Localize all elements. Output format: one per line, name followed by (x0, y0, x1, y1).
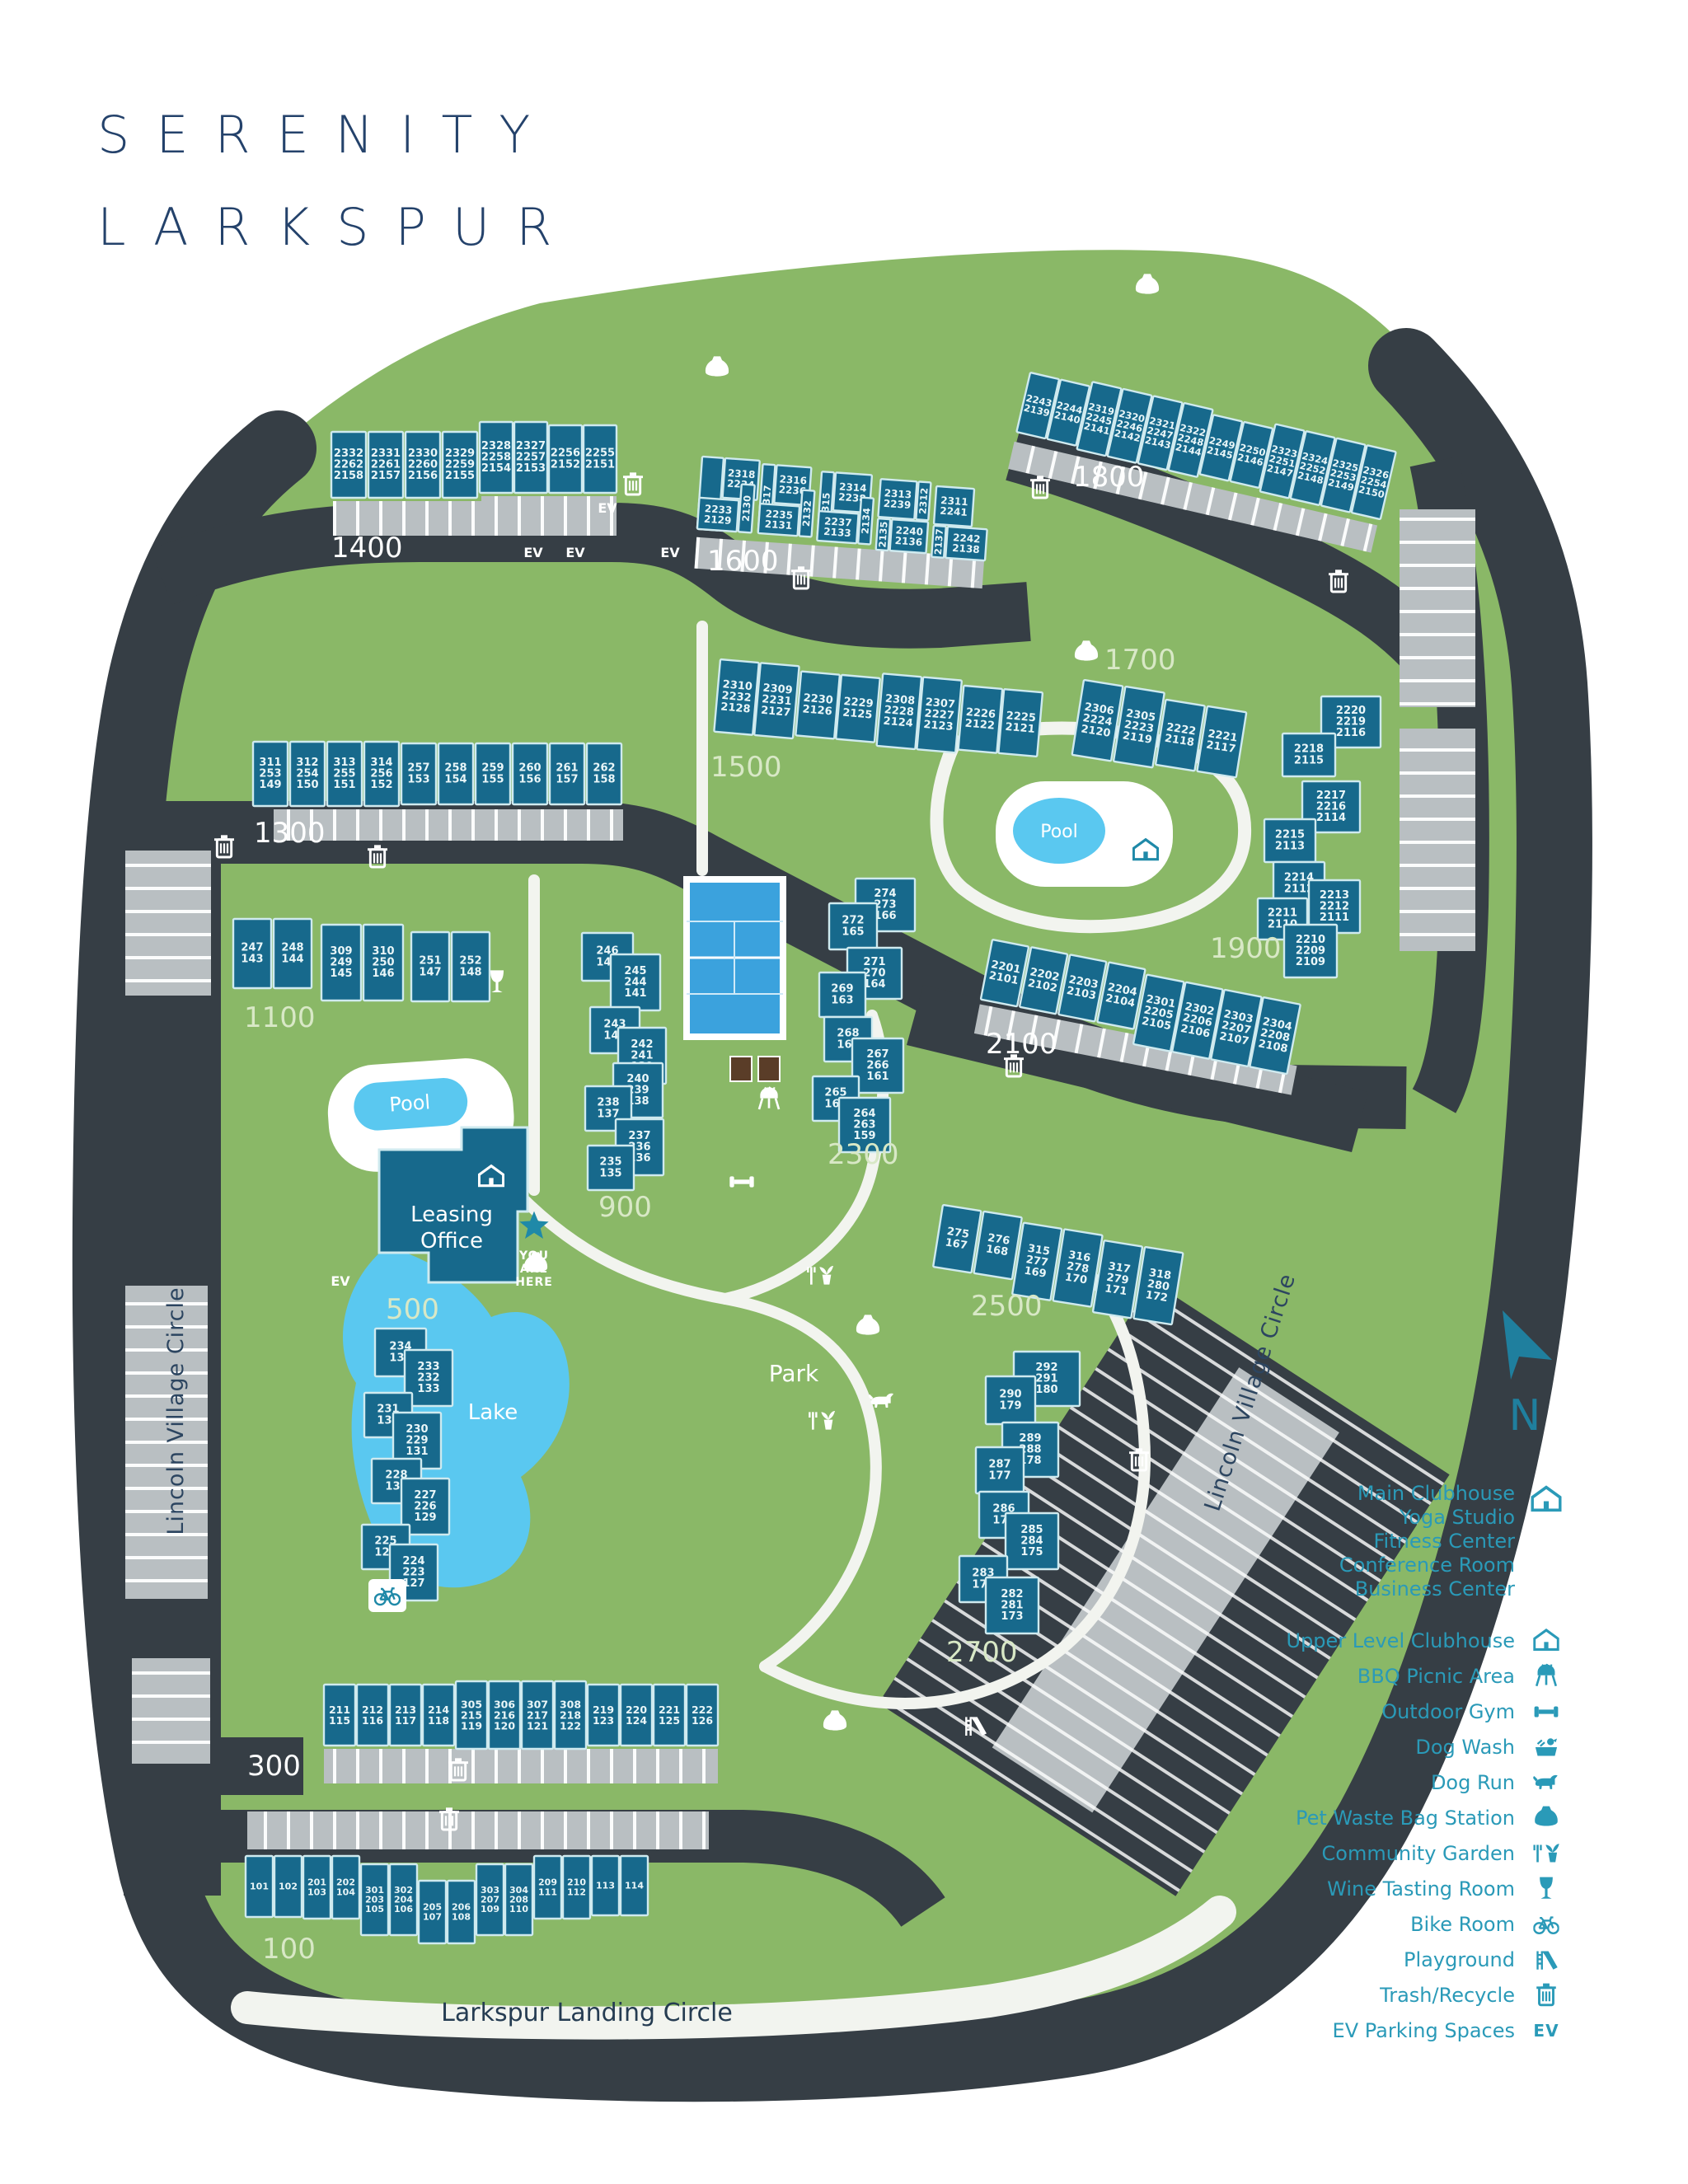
legend-row: Dog Wash (1210, 1729, 1564, 1765)
unit-numbers: 306216120 (494, 1698, 515, 1732)
unit-numbers: 232822582154 (481, 440, 511, 475)
unit-numbers: 222022192116 (1336, 705, 1366, 739)
ev-parking-label: EV (565, 545, 585, 560)
dogwash-icon (1528, 1733, 1564, 1761)
legend-label: Pet Waste Bag Station (1296, 1807, 1515, 1830)
unit-numbers: 238137 (597, 1097, 619, 1121)
unit-numbers: 201103 (307, 1877, 326, 1898)
legend-label: Trash/Recycle (1380, 1984, 1515, 2007)
unit-numbers: 258154 (444, 762, 467, 786)
pool-west-label: Pool (388, 1090, 430, 1116)
unit-numbers: 214118 (428, 1704, 449, 1727)
cluster-label-1100: 1100 (244, 1001, 316, 1034)
legend-row: BBQ Picnic Area (1210, 1658, 1564, 1694)
legend-label: Bike Room (1410, 1913, 1515, 1936)
unit-numbers: 233222622158 (334, 448, 363, 482)
unit-numbers: 230822282124 (883, 692, 916, 729)
building-cluster-1400: 2332226221582331226121572330226021562329… (331, 422, 617, 536)
unit-numbers: 230229131 (406, 1423, 428, 1458)
icon-chip (368, 1579, 406, 1612)
ev-parking-label: EV (598, 500, 617, 516)
unit-numbers: 251147 (419, 955, 441, 979)
cluster-label-1600: 1600 (707, 545, 779, 578)
playground-icon (1528, 1946, 1564, 1974)
unit-numbers: 209111 (538, 1877, 557, 1898)
cluster-label-500: 500 (386, 1293, 439, 1326)
legend-label: Dog Wash (1415, 1736, 1515, 1759)
cluster-label-2500: 2500 (971, 1290, 1043, 1323)
unit-numbers: 252148 (459, 955, 481, 979)
north-label: N (1479, 1391, 1570, 1441)
parking-stripes (481, 496, 617, 536)
legend-label: Community Garden (1322, 1842, 1516, 1865)
unit-numbers: 313255151 (333, 757, 355, 791)
legend-row: Pet Waste Bag Station (1210, 1800, 1564, 1835)
parking-stripes (324, 1749, 718, 1783)
amenities-legend: Main ClubhouseYoga StudioFitness CenterC… (1210, 1482, 1564, 2048)
cluster-label-2300: 2300 (828, 1138, 899, 1171)
street-left-label: Lincoln Village Circle (163, 1286, 189, 1535)
unit-numbers: 311253149 (259, 757, 281, 791)
unit-numbers: 247143 (241, 942, 263, 966)
unit-numbers: 232922592155 (445, 448, 475, 482)
unit-numbers: 22212117 (1205, 728, 1238, 756)
unit-numbers: 22372133 (823, 515, 852, 539)
unit-numbers: 206108 (452, 1902, 471, 1923)
legend-clubhouse-line: Main Clubhouse (1339, 1482, 1515, 1506)
unit-numbers: 2130 (740, 494, 753, 522)
property-title-line2: LARKSPUR (97, 181, 578, 274)
unit-numbers: 264263159 (853, 1108, 875, 1142)
legend-clubhouse-line: Yoga Studio (1339, 1506, 1515, 1530)
clubhouse-icon (1528, 1483, 1564, 1601)
unit-numbers: 23132239 (883, 487, 912, 511)
unit-numbers: 271270164 (863, 956, 885, 991)
north-indicator: N (1479, 1304, 1570, 1444)
unit-numbers: 22182115 (1294, 743, 1324, 767)
unit-numbers: 233122612157 (371, 448, 401, 482)
legend-label: Playground (1404, 1948, 1515, 1971)
unit-numbers: 292291180 (1035, 1361, 1057, 1396)
unit-numbers: 2134 (859, 508, 872, 535)
unit-numbers: 233022602156 (408, 448, 438, 482)
unit-numbers: 232722572153 (516, 440, 546, 475)
grill-icon (1528, 1662, 1564, 1690)
cluster-label-1900: 1900 (1210, 932, 1282, 965)
unit-numbers: 230922312127 (761, 682, 794, 719)
unit-numbers: 22252121 (1005, 710, 1037, 736)
unit-numbers: 230722272123 (923, 696, 956, 733)
unit-numbers: 310250146 (372, 945, 394, 980)
park-label: Park (769, 1360, 819, 1387)
unit-numbers: 261157 (556, 762, 578, 786)
legend-row: Bike Room (1210, 1906, 1564, 1942)
unit-numbers: 290179 (999, 1389, 1021, 1413)
cluster-label-1400: 1400 (331, 532, 403, 565)
legend-clubhouse-block: Main ClubhouseYoga StudioFitness CenterC… (1210, 1482, 1564, 1601)
unit-numbers: 314256152 (370, 757, 392, 791)
unit-numbers: 245244141 (624, 965, 646, 1000)
unit-numbers: 114 (625, 1881, 644, 1891)
unit-numbers: 262158 (593, 762, 615, 786)
ev-parking-label: EV (660, 545, 680, 560)
unit-numbers: 205107 (423, 1902, 442, 1923)
unit-numbers: 259155 (481, 762, 504, 786)
unit-numbers: 23112241 (940, 494, 968, 518)
unit-numbers: 276168 (985, 1232, 1010, 1259)
legend-label: Dog Run (1431, 1771, 1515, 1794)
unit-numbers: 303207109 (481, 1885, 499, 1915)
unit-numbers: 302204106 (394, 1885, 413, 1915)
unit-numbers: 101 (250, 1882, 269, 1892)
unit-numbers: 212116 (362, 1704, 383, 1727)
legend-row: Trash/Recycle (1210, 1977, 1564, 2013)
unit-numbers: 307217121 (527, 1698, 548, 1732)
unit-numbers: 22562152 (551, 448, 580, 471)
legend-clubhouse-line: Conference Room (1339, 1554, 1515, 1577)
unit-numbers: 220124 (626, 1704, 647, 1727)
unit-numbers: 22352131 (764, 508, 793, 532)
unit-numbers: 260156 (518, 762, 541, 786)
unit-numbers: 202104 (336, 1877, 355, 1898)
unit-numbers: 22552151 (585, 448, 615, 471)
unit-numbers: 305215119 (461, 1698, 482, 1732)
legend-clubhouse-line: Business Center (1339, 1577, 1515, 1601)
legend-row: EV Parking SpacesEV (1210, 2013, 1564, 2048)
unit-numbers: 22422138 (952, 532, 981, 555)
trash-icon (1528, 1981, 1564, 2009)
garden-icon (1528, 1840, 1564, 1868)
unit-numbers: 102 (279, 1882, 298, 1892)
unit-numbers: 2137 (932, 528, 945, 555)
bike-icon (1528, 1910, 1564, 1938)
unit-numbers: 213117 (395, 1704, 416, 1727)
legend-clubhouse-labels: Main ClubhouseYoga StudioFitness CenterC… (1339, 1482, 1515, 1601)
ev-parking-label: EV (523, 545, 543, 560)
legend-row: Playground (1210, 1942, 1564, 1977)
unit-numbers: 22222118 (1164, 721, 1197, 749)
unit-numbers: 230622242120 (1080, 701, 1114, 739)
pool-north-label: Pool (1040, 822, 1078, 842)
legend-row: Community Garden (1210, 1835, 1564, 1871)
dog-icon (1528, 1769, 1564, 1797)
cluster-label-900: 900 (598, 1191, 652, 1224)
unit-numbers: 221322122111 (1320, 889, 1349, 924)
cluster-label-300: 300 (247, 1750, 301, 1783)
legend-label: Wine Tasting Room (1327, 1877, 1515, 1900)
cluster-label-2100: 2100 (986, 1028, 1057, 1061)
north-arrow-icon (1479, 1304, 1570, 1386)
unit-numbers: 230522232119 (1122, 707, 1156, 746)
unit-numbers: 309249145 (330, 945, 352, 980)
cluster-label-100: 100 (262, 1933, 316, 1966)
wine-icon (1528, 1875, 1564, 1903)
unit-numbers: 235135 (599, 1156, 621, 1180)
unit-numbers: 2132 (800, 500, 814, 527)
cluster-label-2700: 2700 (946, 1636, 1018, 1669)
legend-label: Upper Level Clubhouse (1286, 1629, 1515, 1652)
unit-numbers: 22402136 (894, 524, 923, 548)
unit-numbers: 233232133 (417, 1361, 439, 1395)
unit-numbers: 222126 (692, 1704, 713, 1727)
unit-numbers: 285284175 (1020, 1524, 1043, 1558)
cluster-label-1300: 1300 (254, 817, 326, 850)
unit-numbers: 2135 (876, 521, 889, 548)
bag-icon (1528, 1804, 1564, 1832)
cluster-label-1500: 1500 (710, 751, 782, 784)
dumbbell-icon (1528, 1698, 1564, 1726)
unit-numbers: 22292125 (842, 696, 874, 722)
property-title: SERENITY LARKSPUR (97, 89, 578, 274)
tennis-court (687, 879, 783, 1037)
site-map-page: { "title": {"line1": "SERENITY", "line2"… (0, 0, 1688, 2184)
legend-label: EV Parking Spaces (1333, 2019, 1515, 2042)
unit-numbers: 248144 (281, 942, 303, 966)
unit-numbers: 221125 (659, 1704, 680, 1727)
unit-numbers: 282281173 (1001, 1588, 1023, 1623)
unit-numbers: 210112 (567, 1877, 586, 1898)
unit-numbers: 113 (596, 1881, 615, 1891)
unit-numbers: 308218122 (560, 1698, 581, 1732)
unit-numbers: 301203105 (365, 1885, 384, 1915)
property-title-line1: SERENITY (97, 89, 578, 181)
building-cluster-300: 2111152121162131172141183052151193062161… (324, 1681, 718, 1783)
legend-label: BBQ Picnic Area (1357, 1665, 1515, 1688)
unit-numbers: 227226129 (414, 1489, 436, 1524)
unit-numbers: 275167 (945, 1226, 970, 1253)
unit-numbers: 272165 (842, 915, 864, 939)
legend-row: Upper Level Clubhouse (1210, 1623, 1564, 1658)
cluster-label-1700: 1700 (1104, 644, 1176, 677)
unit-numbers: 269163 (831, 983, 853, 1007)
unit-numbers: 304208110 (509, 1885, 528, 1915)
unit-numbers: 267266161 (866, 1048, 889, 1083)
lake-label: Lake (468, 1400, 518, 1425)
legend-row: Wine Tasting Room (1210, 1871, 1564, 1906)
unit-numbers: 2312 (917, 487, 930, 514)
parking-stripes (274, 809, 623, 841)
cluster-label-1800: 1800 (1073, 461, 1145, 494)
unit-numbers: 22332129 (704, 503, 733, 527)
street-bottom-label: Larkspur Landing Circle (441, 1999, 733, 2027)
legend-row: Outdoor Gym (1210, 1694, 1564, 1729)
unit-numbers: 257153 (407, 762, 429, 786)
legend-label: Outdoor Gym (1381, 1700, 1515, 1723)
unit-numbers: 22152113 (1275, 829, 1305, 853)
legend-clubhouse-line: Fitness Center (1339, 1530, 1515, 1554)
unit-numbers: 211115 (329, 1704, 350, 1727)
legend-row: Dog Run (1210, 1765, 1564, 1800)
unit-numbers: 219123 (593, 1704, 614, 1727)
unit-numbers: 312254150 (296, 757, 318, 791)
unit-numbers: 22262122 (964, 706, 996, 733)
unit-numbers: 231022322128 (720, 678, 753, 715)
ev-parking-label: EV (331, 1273, 350, 1289)
ev-icon: EV (1528, 2021, 1564, 2041)
unit-numbers: 287177 (988, 1459, 1010, 1483)
unit-numbers: 221722162114 (1316, 790, 1346, 824)
unit-numbers: 22302126 (802, 692, 834, 719)
house-icon (1528, 1627, 1564, 1655)
unit-numbers: 221022092109 (1296, 934, 1325, 968)
